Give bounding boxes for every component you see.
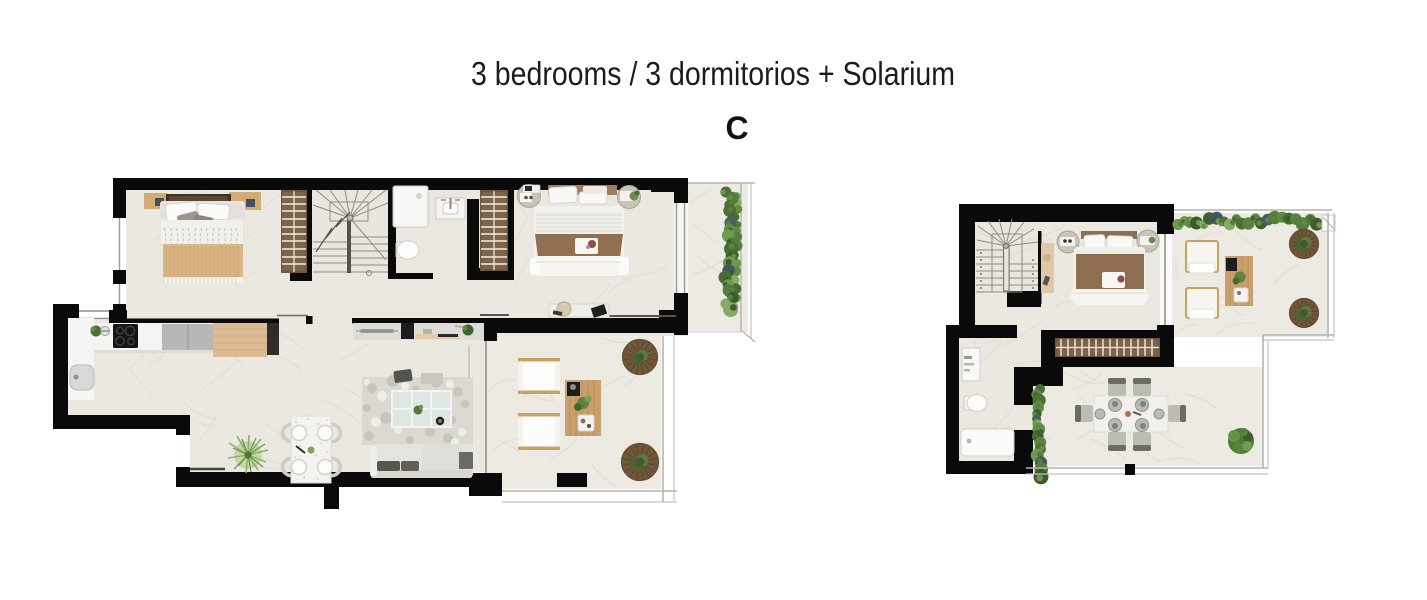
svg-text:3 bedrooms / 3 dormitorios + S: 3 bedrooms / 3 dormitorios + Solarium: [471, 55, 955, 92]
svg-text:C: C: [725, 110, 748, 146]
